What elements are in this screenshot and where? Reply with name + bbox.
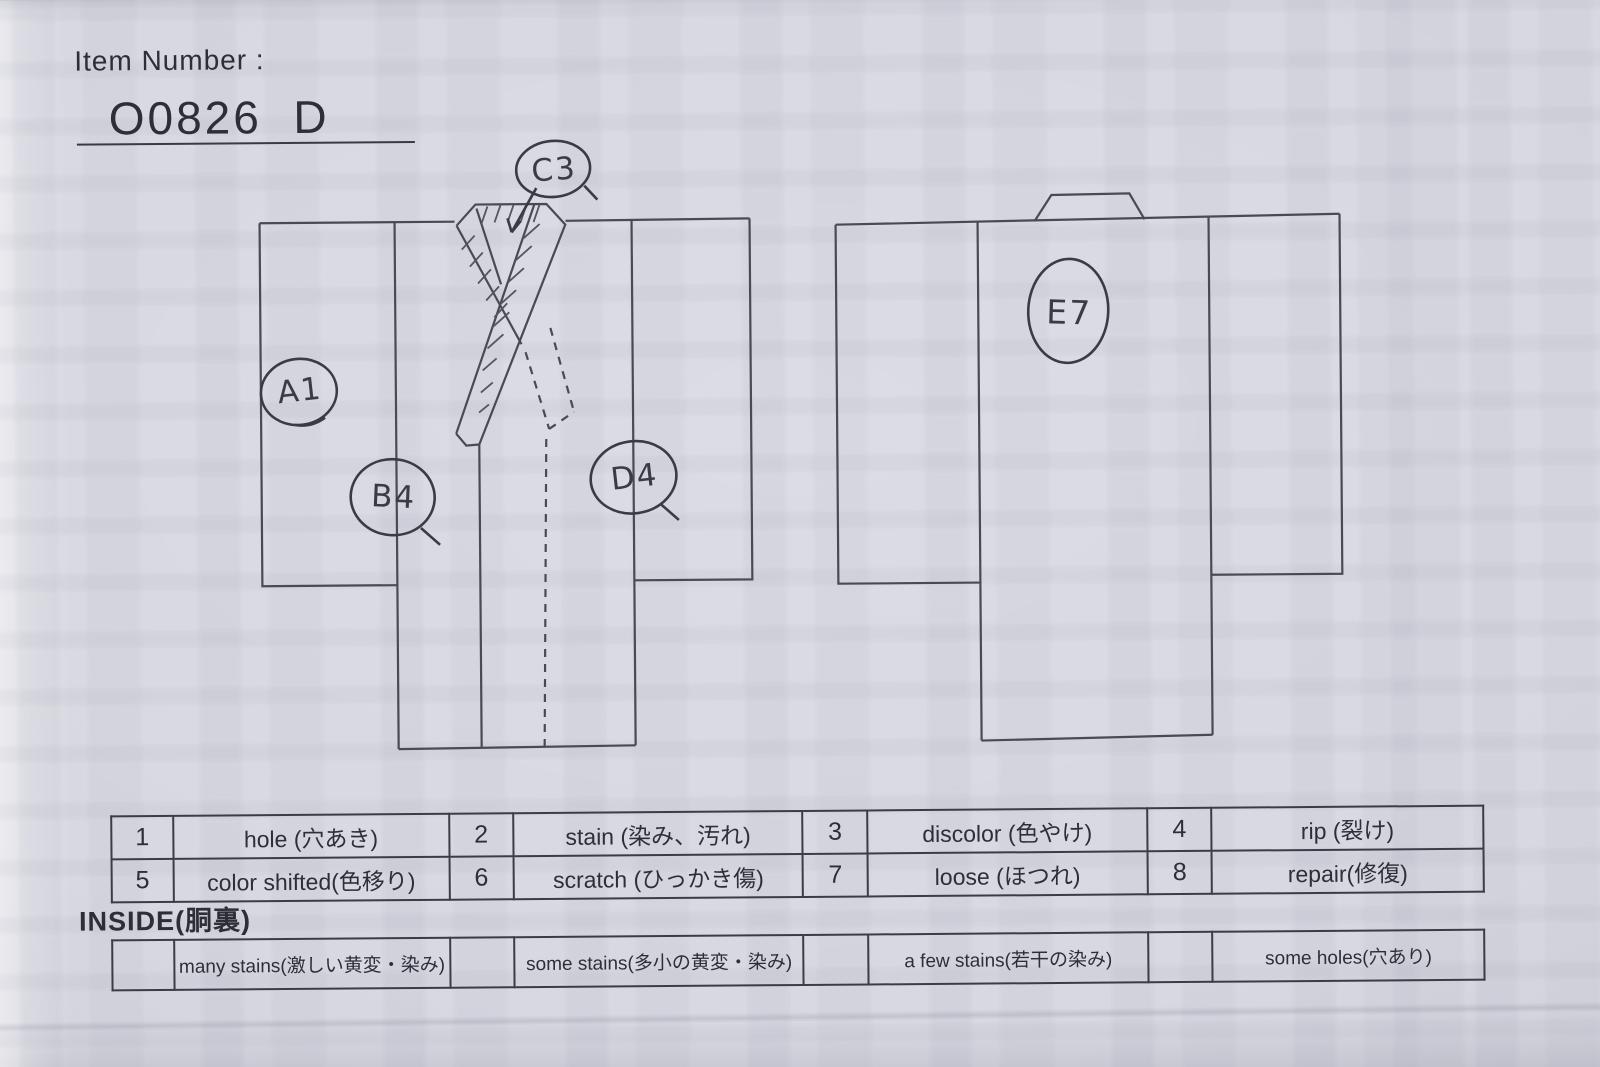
- legend-code: 5: [112, 859, 174, 902]
- legend-code: 6: [449, 856, 514, 900]
- inside-condition-table: many stains(激しい黄変・染み) some stains(多小の黄変・…: [111, 929, 1485, 992]
- annotation-d4: D4: [600, 456, 670, 499]
- annotation-a1: A1: [269, 370, 331, 412]
- front-collar-tip: [456, 434, 479, 446]
- annotation-e7: E7: [1036, 292, 1103, 333]
- legend-label: stain (染み、汚れ): [513, 811, 803, 856]
- legend-code: 1: [111, 816, 173, 859]
- front-hem: [399, 745, 636, 749]
- legend-label: discolor (色やけ): [867, 808, 1147, 853]
- legend-code: 4: [1147, 808, 1212, 852]
- inside-label: many stains(激しい黄変・染み): [174, 938, 450, 990]
- inside-checkbox-cell: [1148, 932, 1213, 983]
- annotation-tail-c3: [584, 186, 597, 200]
- annotation-tail-d4: [661, 504, 679, 520]
- back-body-left-edge: [978, 222, 982, 741]
- annotation-c3: C3: [522, 150, 587, 191]
- back-shoulder: [836, 214, 1340, 225]
- legend-label: scratch (ひっかき傷): [514, 854, 804, 899]
- inside-label: a few stains(若干の染み): [868, 932, 1148, 984]
- legend-label: loose (ほつれ): [867, 851, 1147, 896]
- front-collar-left-outer: [457, 225, 522, 344]
- back-collar: [1034, 193, 1144, 221]
- back-left-sleeve: [836, 224, 981, 584]
- legend-label: color shifted(色移り): [173, 857, 449, 902]
- inside-row: many stains(激しい黄変・染み) some stains(多小の黄変・…: [112, 930, 1484, 991]
- front-right-sleeve: [632, 218, 753, 580]
- inside-section-title: INSIDE(胴裏): [79, 898, 251, 938]
- front-shoulder-left: [260, 222, 455, 224]
- legend-code: 7: [803, 853, 868, 897]
- kimono-back-diagram: [835, 192, 1343, 742]
- scanned-sheet-photo: Item Number : O0826 D: [0, 0, 1600, 1067]
- legend-code: 3: [803, 810, 868, 854]
- defect-legend-table: 1 hole (穴あき) 2 stain (染み、汚れ) 3 discolor …: [110, 805, 1485, 904]
- inside-label: some holes(穴あり): [1212, 930, 1484, 982]
- inside-checkbox-cell: [112, 940, 174, 990]
- annotation-b4: B4: [361, 478, 427, 517]
- legend-label: rip (裂け): [1211, 806, 1483, 851]
- back-body-right-edge: [1209, 217, 1213, 735]
- front-collar-right-edge-a: [454, 204, 536, 434]
- legend-label: repair(修復): [1212, 849, 1484, 894]
- paper-sheet: Item Number : O0826 D: [0, 0, 1600, 1067]
- inside-checkbox-cell: [450, 937, 515, 988]
- front-collar-hidden-band: [525, 328, 576, 747]
- legend-code: 2: [449, 813, 514, 857]
- kimono-front-diagram: [259, 202, 753, 750]
- inside-checkbox-cell: [804, 934, 869, 985]
- legend-label: hole (穴あき): [173, 814, 449, 859]
- back-right-sleeve: [1209, 214, 1343, 575]
- front-shoulder-right: [566, 218, 750, 220]
- front-center-line: [479, 445, 481, 748]
- legend-code: 8: [1147, 851, 1212, 895]
- annotation-tail-b4: [421, 528, 440, 545]
- inside-label: some stains(多小の黄変・染み): [514, 935, 804, 987]
- back-hem: [982, 735, 1213, 741]
